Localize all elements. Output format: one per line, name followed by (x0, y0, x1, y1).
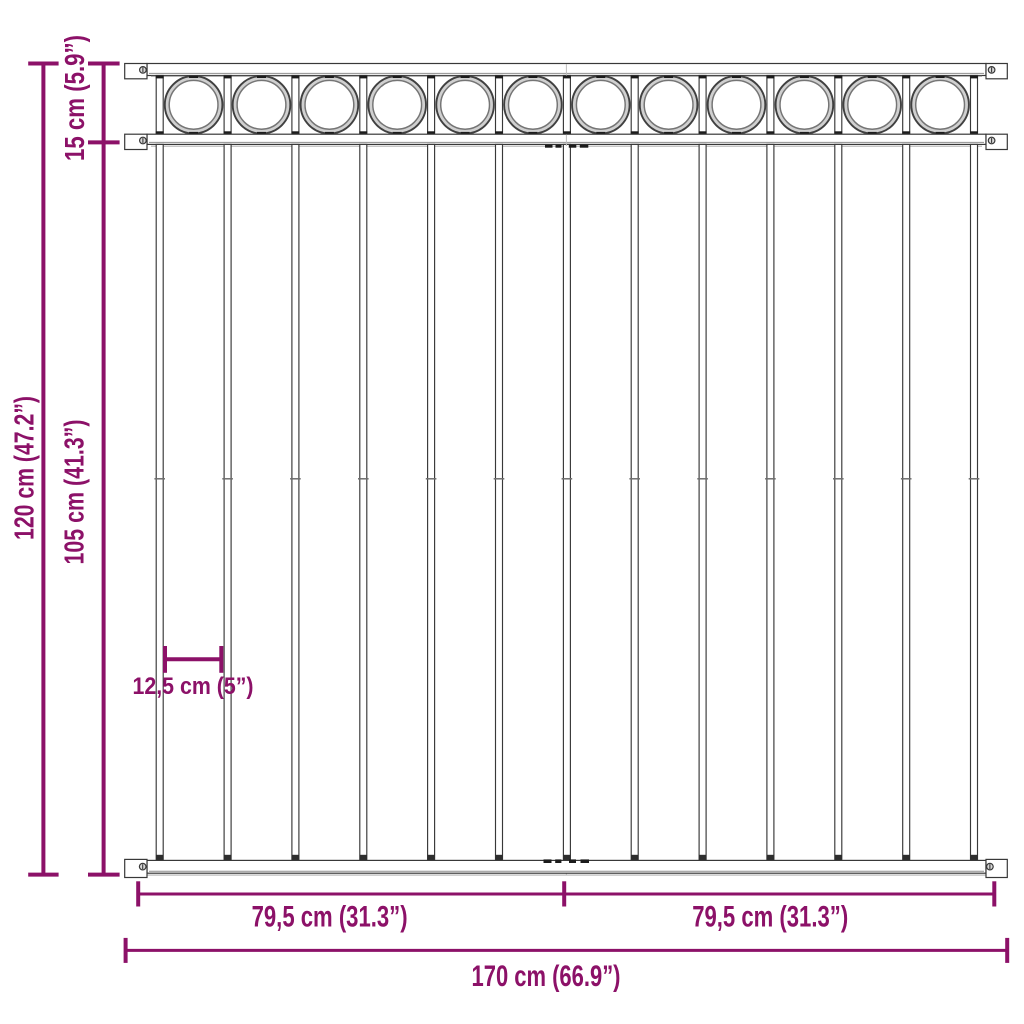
svg-text:79,5 cm (31.3”): 79,5 cm (31.3”) (252, 900, 408, 933)
svg-text:120 cm (47.2”): 120 cm (47.2”) (9, 396, 40, 540)
svg-text:105 cm (41.3”): 105 cm (41.3”) (58, 420, 89, 565)
svg-text:79,5 cm (31.3”): 79,5 cm (31.3”) (692, 900, 848, 933)
svg-text:12,5 cm (5”): 12,5 cm (5”) (133, 673, 254, 700)
svg-text:170 cm (66.9”): 170 cm (66.9”) (472, 960, 621, 993)
svg-text:15 cm (5.9”): 15 cm (5.9”) (59, 35, 90, 161)
